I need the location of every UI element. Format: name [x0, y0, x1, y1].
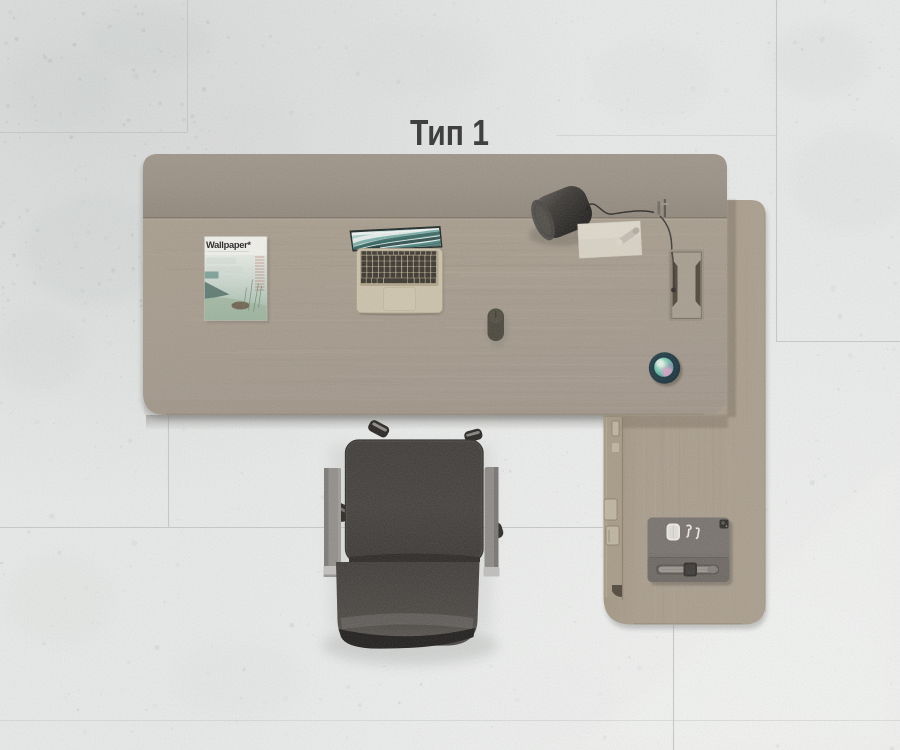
- svg-text:Тип 1: Тип 1: [410, 112, 489, 153]
